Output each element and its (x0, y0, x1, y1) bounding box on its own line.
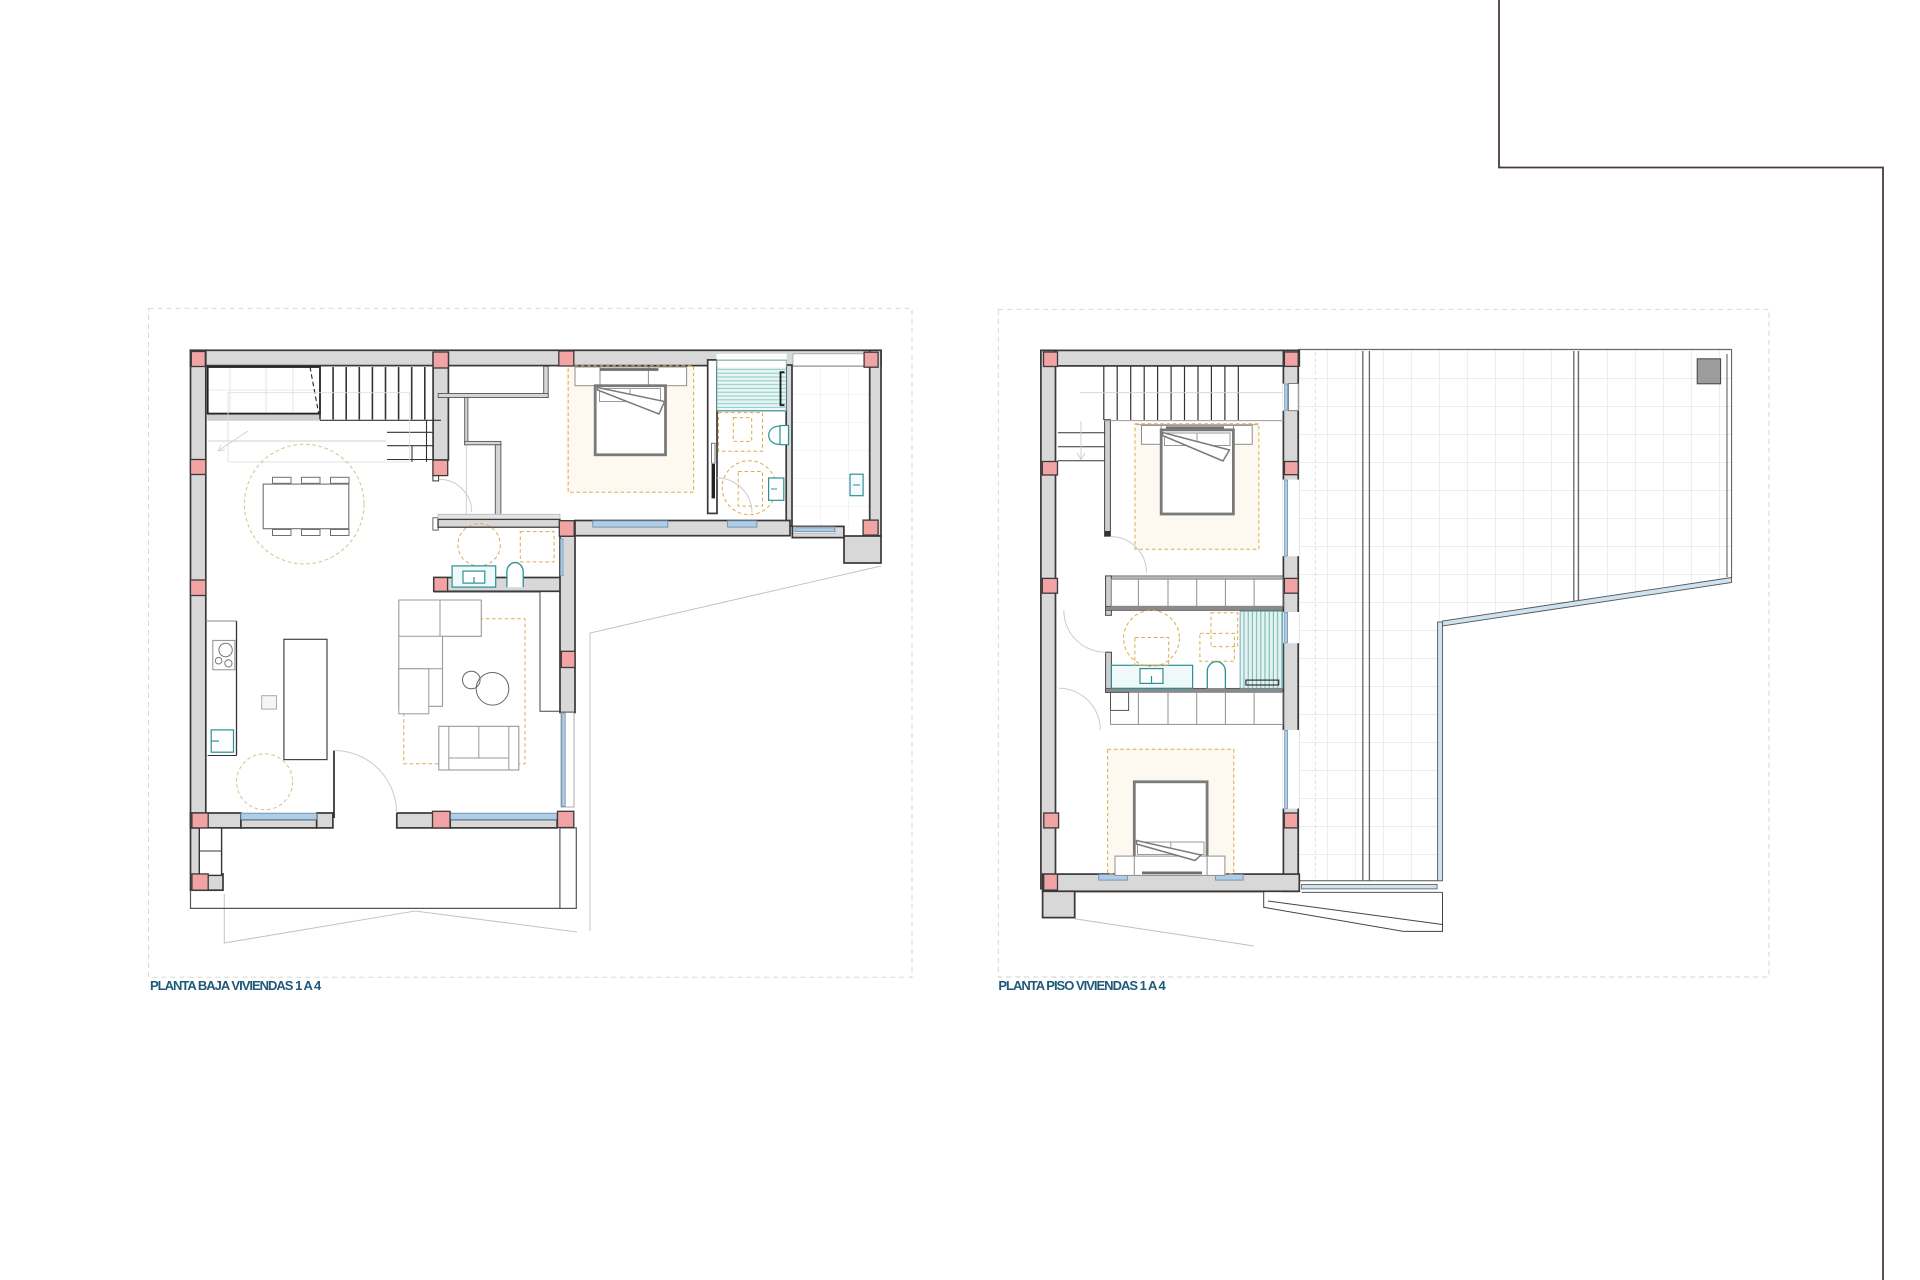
svg-text:PLANTA PISO VIVIENDAS 1 A 4: PLANTA PISO VIVIENDAS 1 A 4 (998, 978, 1166, 993)
svg-text:PLANTA BAJA VIVIENDAS 1 A 4: PLANTA BAJA VIVIENDAS 1 A 4 (150, 978, 322, 993)
